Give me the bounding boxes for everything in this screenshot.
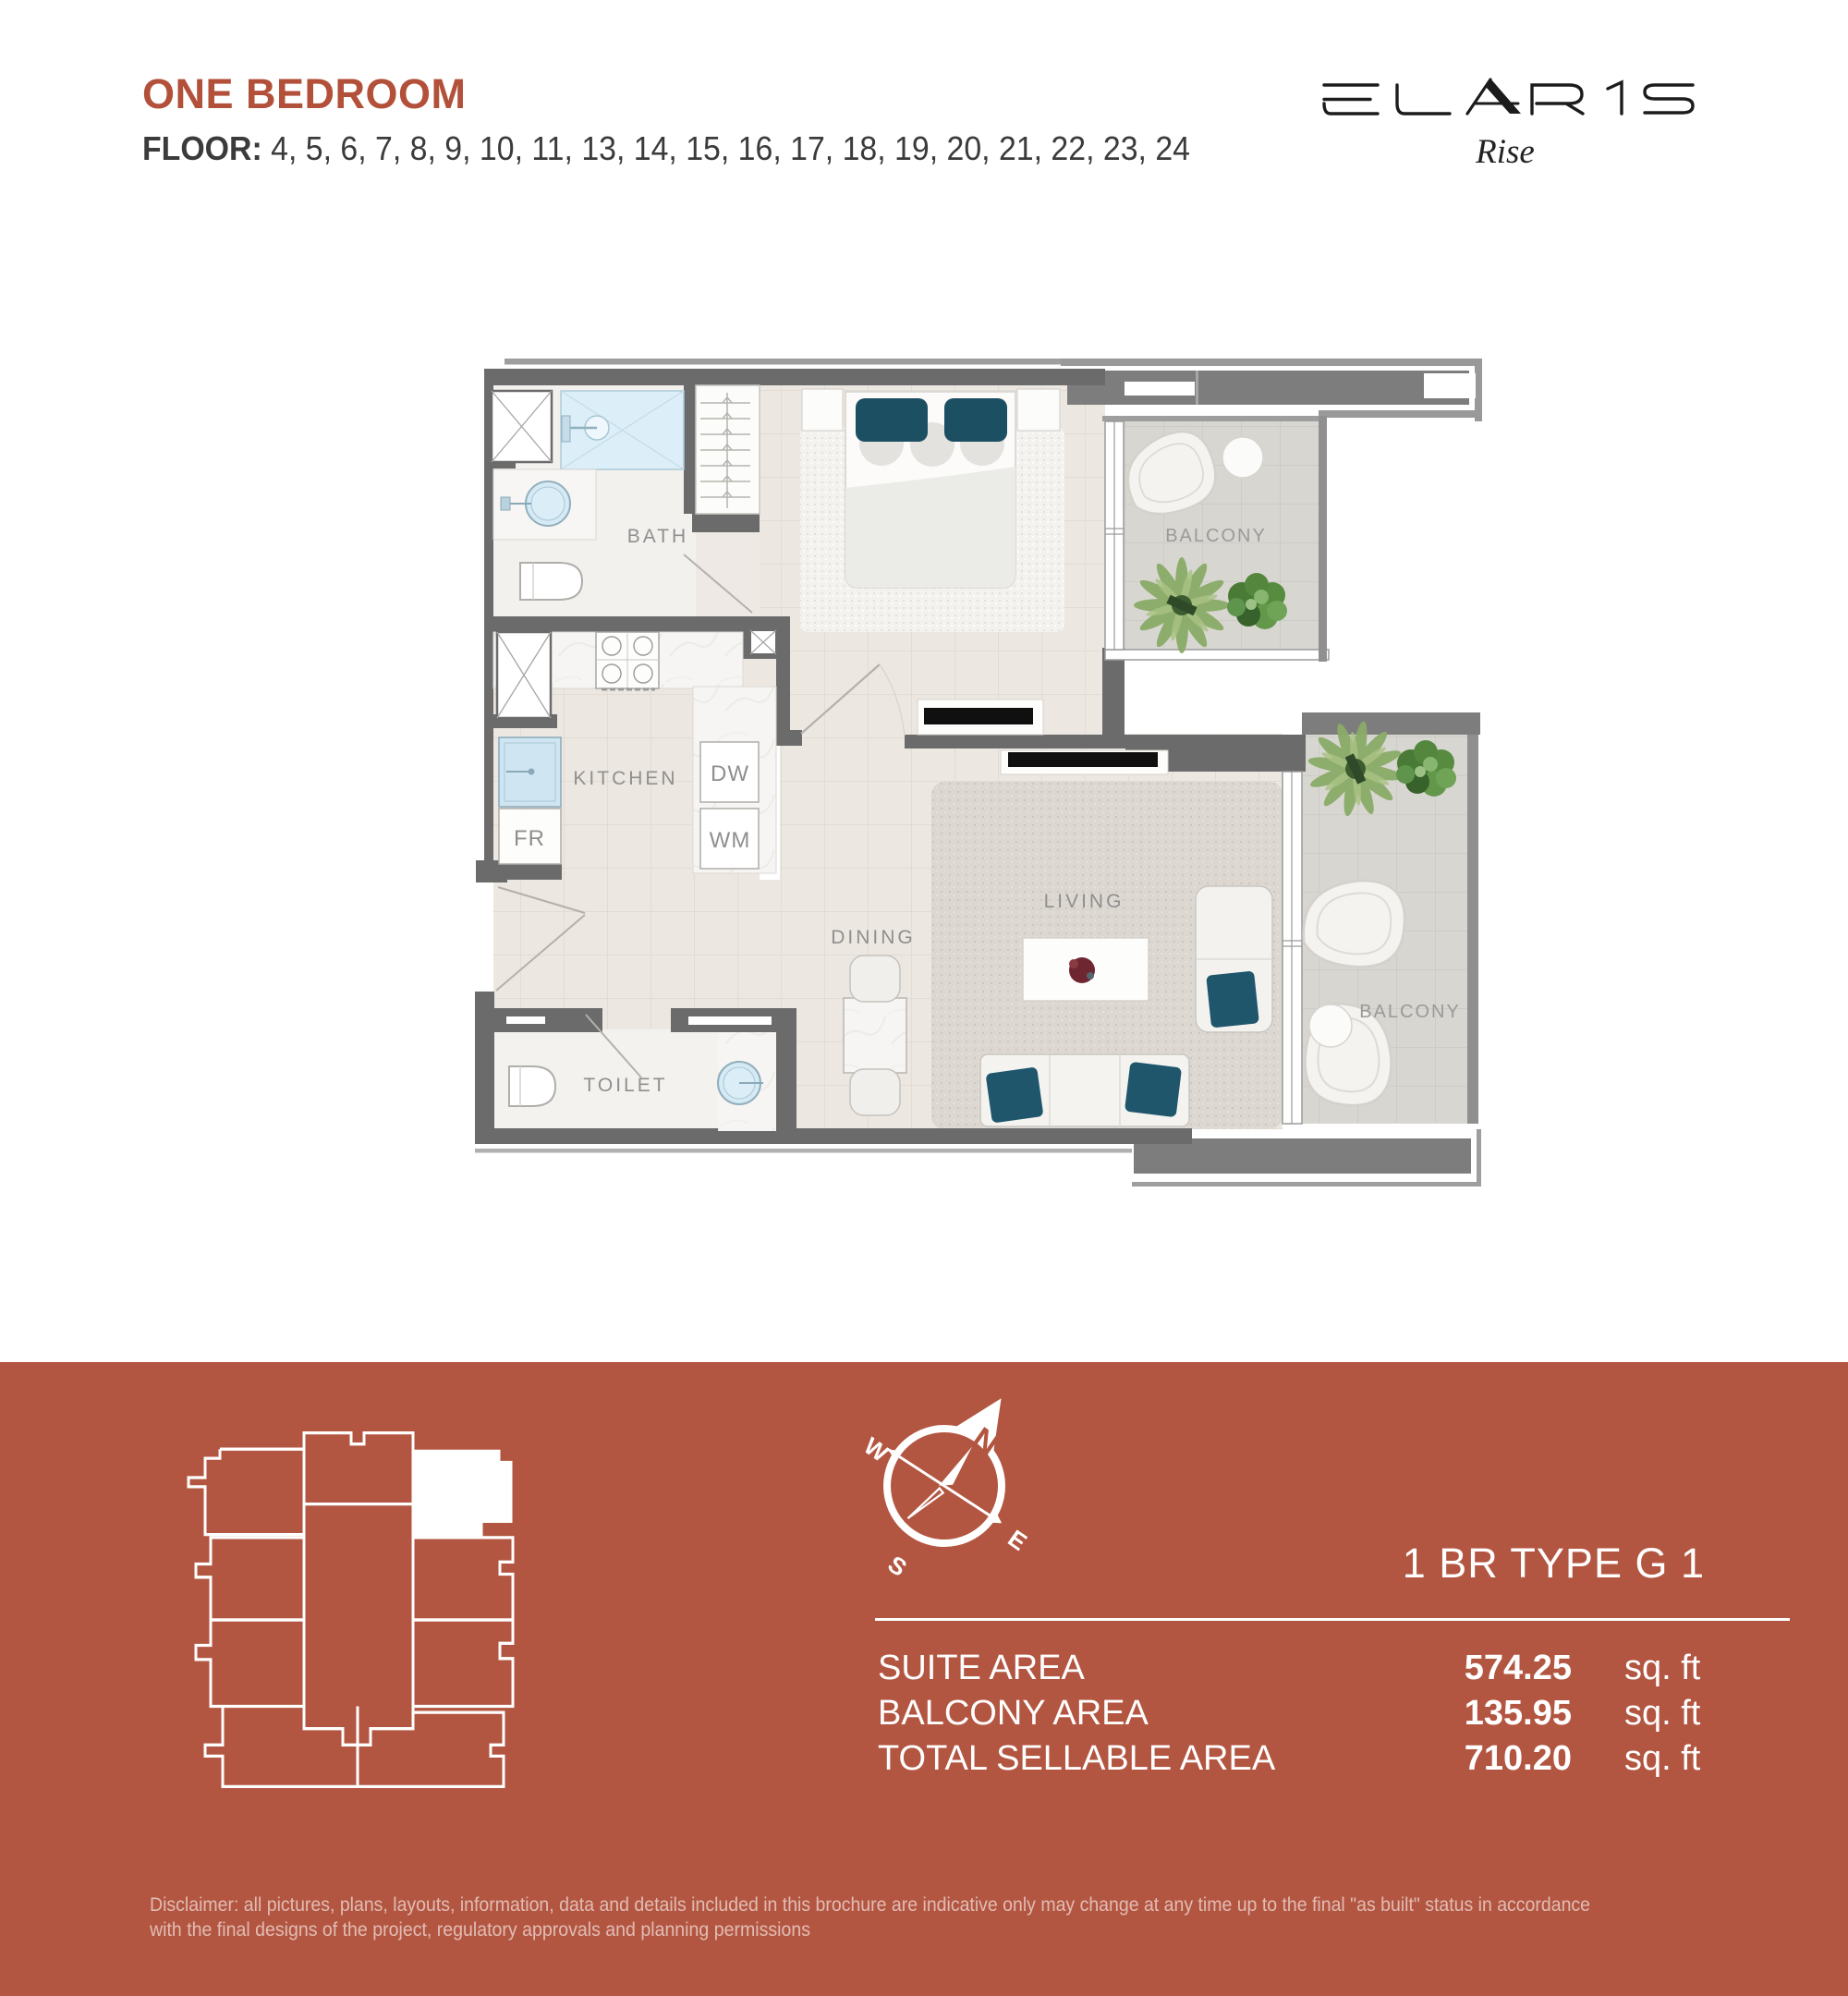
svg-text:KITCHEN: KITCHEN — [573, 768, 677, 789]
svg-text:with the final designs of the: with the final designs of the project, r… — [149, 1919, 810, 1941]
svg-text:Rise: Rise — [1475, 133, 1535, 171]
svg-text:TOTAL SELLABLE AREA: TOTAL SELLABLE AREA — [878, 1739, 1276, 1778]
svg-text:Disclaimer: all pictures, plan: Disclaimer: all pictures, plans, layouts… — [150, 1894, 1590, 1916]
svg-text:DINING: DINING — [831, 927, 916, 948]
svg-text:sq. ft: sq. ft — [1624, 1649, 1701, 1687]
svg-text:ONE BEDROOM: ONE BEDROOM — [142, 70, 467, 117]
svg-text:LIVING: LIVING — [1044, 891, 1125, 912]
svg-text:574.25: 574.25 — [1465, 1649, 1572, 1687]
svg-text:FR: FR — [514, 826, 545, 851]
svg-text:sq. ft: sq. ft — [1624, 1739, 1701, 1778]
svg-text:BALCONY: BALCONY — [1359, 1002, 1461, 1022]
svg-text:1 BR TYPE G 1: 1 BR TYPE G 1 — [1403, 1540, 1705, 1587]
svg-text:BALCONY AREA: BALCONY AREA — [878, 1694, 1149, 1733]
svg-text:sq. ft: sq. ft — [1624, 1694, 1701, 1733]
svg-text:TOILET: TOILET — [583, 1075, 667, 1096]
svg-text:DW: DW — [711, 761, 749, 786]
svg-text:710.20: 710.20 — [1465, 1739, 1572, 1778]
svg-text:BALCONY: BALCONY — [1165, 526, 1267, 546]
svg-text:135.95: 135.95 — [1465, 1694, 1572, 1733]
svg-text:BATH: BATH — [627, 526, 688, 547]
svg-text:SUITE AREA: SUITE AREA — [878, 1649, 1085, 1687]
svg-text:FLOOR: 4, 5, 6, 7, 8, 9, 10, 1: FLOOR: 4, 5, 6, 7, 8, 9, 10, 11, 13, 14,… — [142, 129, 1190, 167]
svg-text:WM: WM — [710, 828, 751, 853]
